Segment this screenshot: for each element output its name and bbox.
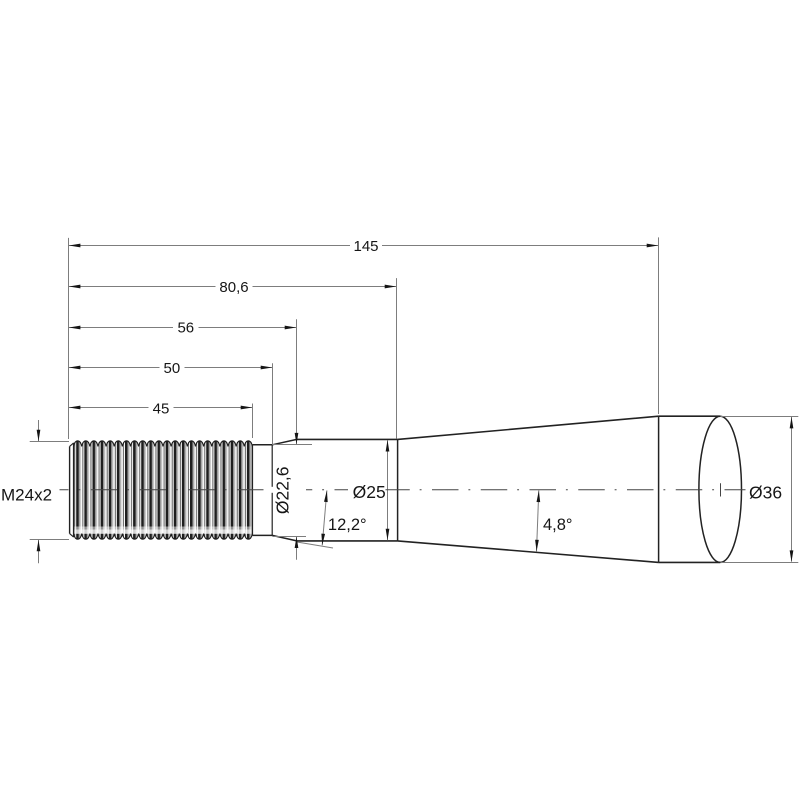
svg-text:145: 145 [353, 238, 378, 255]
svg-text:4,8°: 4,8° [543, 516, 573, 534]
svg-text:Ø36: Ø36 [749, 482, 782, 502]
svg-text:12,2°: 12,2° [328, 516, 367, 534]
svg-text:45: 45 [153, 400, 170, 417]
svg-text:50: 50 [164, 360, 181, 377]
svg-text:Ø25: Ø25 [353, 482, 386, 502]
svg-text:80,6: 80,6 [219, 279, 248, 296]
svg-text:Ø22,6: Ø22,6 [273, 466, 293, 514]
svg-text:56: 56 [177, 320, 194, 337]
svg-text:M24x2: M24x2 [1, 486, 52, 505]
